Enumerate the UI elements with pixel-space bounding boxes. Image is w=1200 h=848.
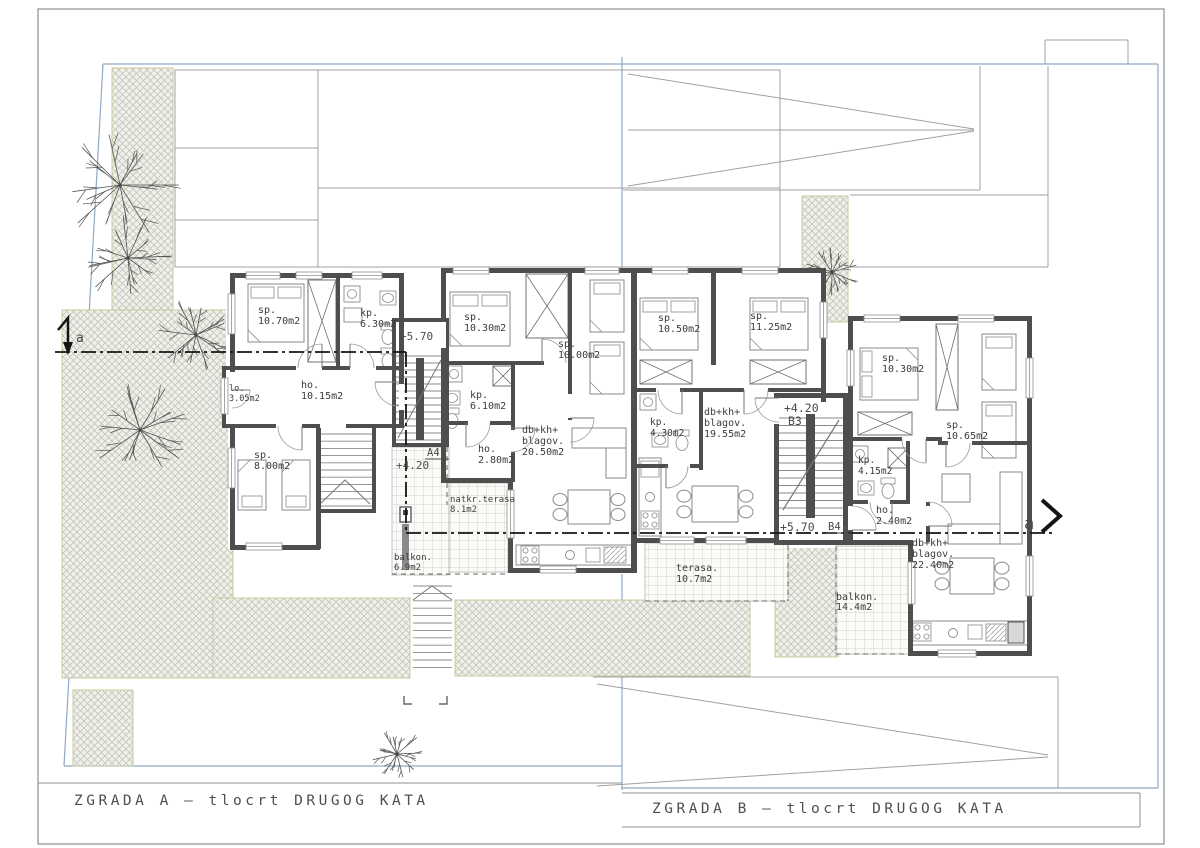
room-label: sp. [750, 311, 768, 322]
room-label: 6.30m2 [360, 319, 396, 330]
window-icon [864, 315, 900, 322]
room-label: 4.30m2 [650, 428, 684, 439]
room-label: sp. [258, 305, 276, 316]
room-label: lo. [229, 384, 244, 394]
room-label: 11.25m2 [750, 322, 792, 333]
window-icon [938, 650, 976, 657]
room-label: sp. [658, 313, 676, 324]
room-label: 2.40m2 [876, 516, 912, 527]
window-icon [352, 272, 382, 279]
room-label: balkon. [394, 553, 432, 563]
level-label: +4.20 [396, 459, 429, 472]
room-label: 6.9m2 [394, 563, 421, 573]
room-label: db+kh+ [912, 538, 948, 549]
room-label: ho. [876, 505, 894, 516]
title-zgrada-a: ZGRADA A — tlocrt DRUGOG KATA [74, 793, 429, 809]
window-icon [296, 272, 322, 279]
room-label: natkr.terasa [450, 495, 515, 505]
window-icon [1026, 556, 1033, 596]
room-label: blagov. [522, 436, 564, 447]
section-marker-label: a [1024, 514, 1034, 534]
room-label: blagov. [704, 418, 746, 429]
room-label: 8.00m2 [254, 461, 290, 472]
room-label: ho. [301, 380, 319, 391]
room-label: db+kh+ [704, 407, 740, 418]
room-label: 14.4m2 [836, 602, 872, 613]
window-icon [585, 267, 619, 274]
room-label: 10.7m2 [676, 574, 712, 585]
window-icon [958, 315, 994, 322]
title-zgrada-b: ZGRADA B — tlocrt DRUGOG KATA [652, 801, 1007, 817]
room-label: 20.50m2 [522, 447, 564, 458]
room-label: 10.65m2 [946, 431, 988, 442]
floor-plan-drawing: sp.10.70m2kp.6.30m2lo.3.05m2ho.10.15m2sp… [0, 0, 1200, 848]
window-icon [246, 272, 280, 279]
room-label: 8.1m2 [450, 505, 477, 515]
window-icon [706, 537, 746, 544]
room-label: kp. [470, 390, 488, 401]
room-label: 22.40m2 [912, 560, 954, 571]
window-icon [221, 378, 228, 414]
level-label: B4' [828, 521, 847, 533]
room-label: 10.50m2 [658, 324, 700, 335]
room-label: 19.55m2 [704, 429, 746, 440]
room-label: 3.05m2 [229, 394, 260, 404]
window-icon [847, 350, 854, 386]
level-label: +4.20 [784, 401, 819, 415]
room-label: sp. [464, 312, 482, 323]
room-label: kp. [360, 308, 378, 319]
window-icon [246, 543, 282, 550]
room-label: 10.70m2 [258, 316, 300, 327]
window-icon [1026, 358, 1033, 398]
floor-plan-sheet: sp.10.70m2kp.6.30m2lo.3.05m2ho.10.15m2sp… [0, 0, 1200, 848]
level-label: A4' [427, 447, 446, 459]
room-label: kp. [650, 417, 667, 428]
room-label: sp. [882, 353, 900, 364]
room-label: kp. [858, 455, 875, 466]
room-label: 10.00m2 [558, 350, 600, 361]
window-icon [228, 448, 235, 488]
window-icon [660, 537, 694, 544]
level-label: +5.70 [780, 520, 815, 534]
window-icon [453, 267, 489, 274]
room-label: 2.80m2 [478, 455, 514, 466]
room-label: sp. [946, 420, 964, 431]
level-label: B3 [788, 414, 802, 428]
section-marker-label: a [76, 331, 84, 346]
window-icon [540, 566, 576, 573]
room-label: terasa. [676, 563, 718, 574]
tree-icon [373, 731, 422, 778]
window-icon [742, 267, 778, 274]
room-label: 6.10m2 [470, 401, 506, 412]
room-label: 10.30m2 [464, 323, 506, 334]
room-label: 10.15m2 [301, 391, 343, 402]
window-icon [820, 302, 827, 338]
window-icon [228, 294, 235, 334]
level-label: +5.70 [400, 330, 433, 343]
room-label: 4.15m2 [858, 466, 892, 477]
room-label: sp. [558, 339, 576, 350]
window-icon [652, 267, 688, 274]
room-label: sp. [254, 450, 272, 461]
room-label: ho. [478, 444, 496, 455]
room-label: blagov. [912, 549, 954, 560]
room-label: db+kh+ [522, 425, 558, 436]
room-label: 10.30m2 [882, 364, 924, 375]
